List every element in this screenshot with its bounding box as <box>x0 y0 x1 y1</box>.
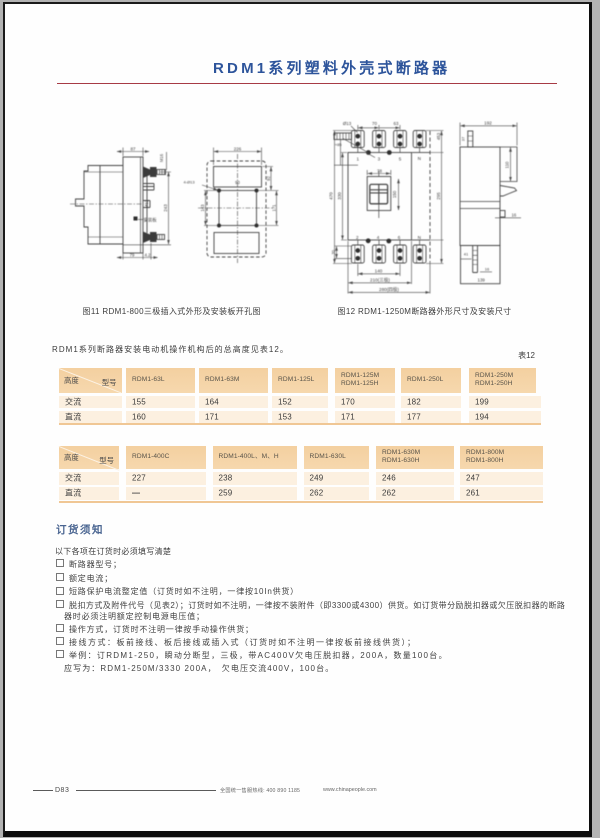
svg-text:5: 5 <box>399 157 402 162</box>
svg-text:139: 139 <box>478 277 486 282</box>
svg-text:16: 16 <box>512 213 517 218</box>
svg-text:6: 6 <box>398 235 401 240</box>
svg-text:470: 470 <box>329 192 334 200</box>
svg-text:78: 78 <box>377 169 382 174</box>
svg-text:37: 37 <box>461 136 466 141</box>
svg-text:92: 92 <box>266 176 271 181</box>
svg-text:150: 150 <box>392 190 397 198</box>
svg-text:143: 143 <box>200 204 205 212</box>
svg-text:210(三极): 210(三极) <box>370 276 390 283</box>
svg-text:90: 90 <box>235 180 240 185</box>
svg-text:63: 63 <box>394 121 399 126</box>
svg-text:4.2: 4.2 <box>145 252 152 257</box>
svg-text:N: N <box>418 235 421 240</box>
svg-text:226: 226 <box>234 146 242 151</box>
svg-text:4-Ø13: 4-Ø13 <box>184 180 196 185</box>
svg-text:70: 70 <box>372 121 377 126</box>
svg-text:295: 295 <box>436 192 441 200</box>
svg-text:3: 3 <box>378 157 381 162</box>
svg-text:70: 70 <box>331 249 336 254</box>
svg-text:Ø13: Ø13 <box>343 121 352 126</box>
svg-text:453: 453 <box>436 132 441 140</box>
svg-text:110: 110 <box>505 161 510 169</box>
svg-text:41: 41 <box>464 252 469 257</box>
svg-text:N: N <box>418 156 421 161</box>
svg-text:140: 140 <box>375 268 383 273</box>
svg-text:192: 192 <box>484 121 492 126</box>
svg-text:243: 243 <box>163 204 168 212</box>
svg-text:4: 4 <box>377 235 380 240</box>
svg-text:M12: M12 <box>144 199 149 208</box>
svg-text:安装板: 安装板 <box>144 217 158 224</box>
svg-text:280(四极): 280(四极) <box>379 286 399 293</box>
svg-text:M16: M16 <box>159 153 164 162</box>
svg-text:1: 1 <box>357 157 360 162</box>
svg-text:330: 330 <box>337 192 342 200</box>
svg-text:171: 171 <box>272 204 277 212</box>
svg-text:≈85: ≈85 <box>335 142 342 147</box>
svg-text:87: 87 <box>130 146 136 151</box>
svg-text:16: 16 <box>485 267 490 272</box>
svg-text:79: 79 <box>130 252 135 257</box>
svg-text:2: 2 <box>356 235 359 240</box>
